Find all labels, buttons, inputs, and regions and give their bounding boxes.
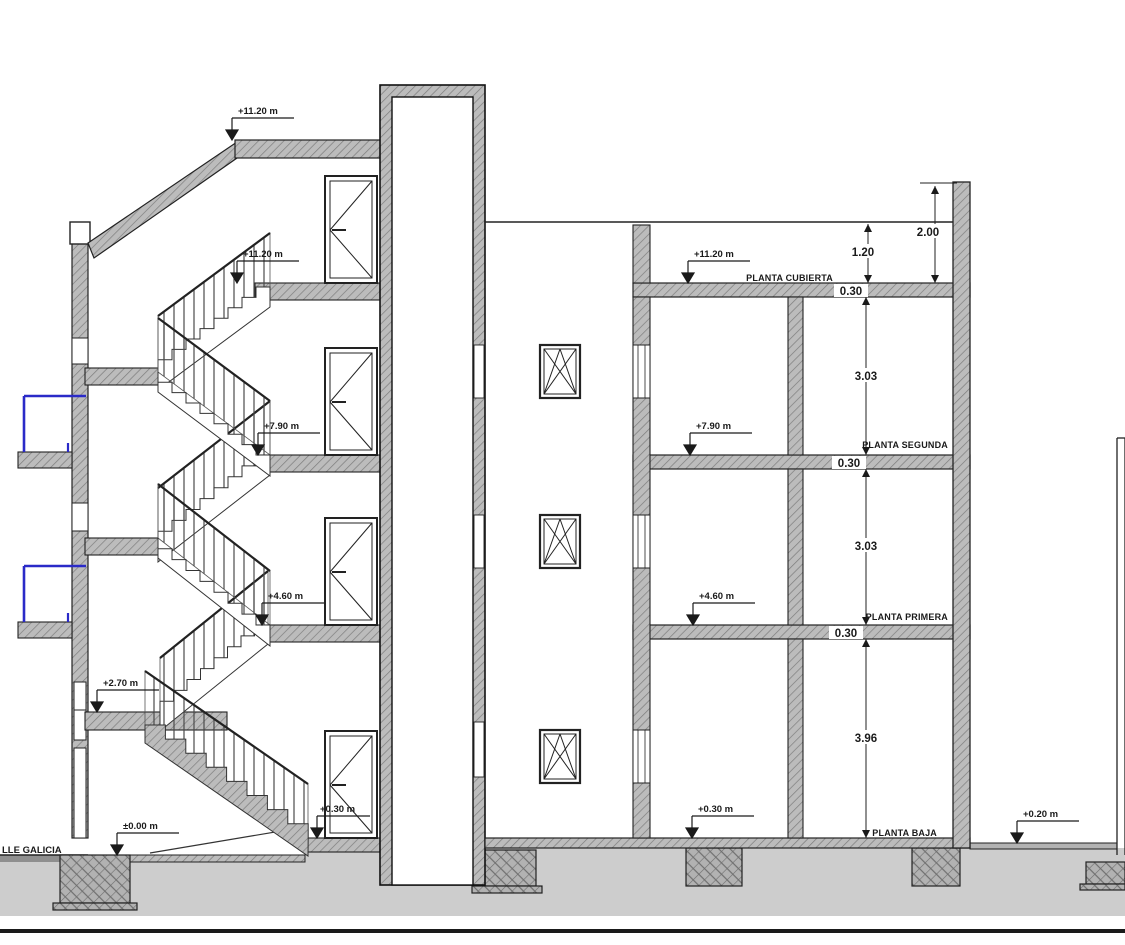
dimension-labels: 2.00 1.20 0.30 3.03 0.30 3.03 0.30 3.96 — [829, 224, 947, 745]
sloped-roof — [88, 142, 237, 258]
dimensions: 2.00 1.20 0.30 3.03 0.30 3.03 0.30 3.96 — [829, 183, 957, 838]
facade-windows — [540, 345, 580, 783]
wall-cap — [70, 222, 90, 244]
floor-label-baja: PLANTA BAJA — [872, 828, 937, 838]
facade-window — [540, 345, 580, 398]
shaft-opening — [474, 515, 484, 568]
mid-landing-slab — [85, 538, 160, 555]
footing — [686, 848, 742, 886]
right-exterior-wall — [953, 182, 970, 848]
dim-forjado-primera: 0.30 — [835, 628, 857, 640]
elevator-shaft — [380, 85, 485, 885]
level-label: +0.30 m — [320, 804, 355, 815]
level-marker: +7.90 m — [684, 421, 752, 455]
level-marker: +11.20 m — [682, 249, 750, 283]
level-label: +11.20 m — [243, 249, 283, 260]
level-label: +4.60 m — [699, 591, 734, 602]
floor-label-segunda: PLANTA SEGUNDA — [862, 440, 948, 450]
dim-altura-segunda: 3.03 — [855, 371, 877, 383]
level-label: ±0.00 m — [123, 821, 158, 832]
right-section — [485, 182, 970, 848]
adjacent-wall — [1117, 438, 1125, 855]
staircase — [145, 233, 308, 856]
window-opening — [74, 682, 86, 740]
landing-door — [325, 731, 377, 838]
balcony-slab — [18, 622, 72, 638]
landing-door — [325, 176, 377, 283]
dim-altura-baja: 3.96 — [855, 733, 877, 745]
footing — [478, 850, 536, 886]
landing-slab — [255, 625, 380, 642]
footing-base — [472, 886, 542, 893]
landing-slab — [255, 283, 380, 300]
window-opening — [72, 338, 88, 364]
facade-window — [540, 515, 580, 568]
shaft-opening — [474, 722, 484, 777]
level-marker: +0.30 m — [686, 804, 754, 838]
level-marker: +11.20 m — [226, 106, 294, 140]
footing-base — [1080, 884, 1125, 890]
dim-antepecho: 1.20 — [852, 247, 874, 259]
patio-slab — [970, 843, 1117, 849]
level-marker: +4.60 m — [687, 591, 755, 625]
window-opening — [633, 345, 650, 398]
level-label: +11.20 m — [238, 106, 278, 117]
footing-base — [53, 903, 137, 910]
floor-label-cubierta: PLANTA CUBIERTA — [746, 273, 833, 283]
architectural-section-drawing: 2.00 1.20 0.30 3.03 0.30 3.03 0.30 3.96 … — [0, 0, 1125, 945]
mid-landing-slab — [85, 368, 160, 385]
stair-roof-slab — [235, 140, 385, 158]
landing-door — [325, 518, 377, 625]
street-label: LLE GALICIA — [2, 845, 62, 856]
ground-landing-slab — [305, 838, 380, 852]
level-label: +4.60 m — [268, 591, 303, 602]
ground-baseline — [0, 929, 1125, 933]
window-opening — [633, 515, 650, 568]
level-label: +0.20 m — [1023, 809, 1058, 820]
window-opening — [72, 503, 88, 531]
balcony-slab — [18, 452, 72, 468]
elevator-shaft-interior — [392, 97, 473, 885]
level-label: +7.90 m — [696, 421, 731, 432]
landing-slab — [255, 455, 380, 472]
shaft-opening — [474, 345, 484, 398]
footing — [1086, 862, 1125, 884]
level-label: +2.70 m — [103, 678, 138, 689]
dim-forjado-cubierta: 0.30 — [840, 286, 862, 298]
ground-slab — [485, 838, 970, 848]
facade-window — [540, 730, 580, 783]
level-label: +11.20 m — [694, 249, 734, 260]
level-label: +7.90 m — [264, 421, 299, 432]
floor-slab — [633, 455, 970, 469]
level-label: +0.30 m — [698, 804, 733, 815]
interior-wall — [788, 297, 803, 838]
window-opening — [633, 730, 650, 783]
dim-altura-primera: 3.03 — [855, 541, 877, 553]
floor-label-primera: PLANTA PRIMERA — [866, 612, 949, 622]
footing — [60, 855, 130, 903]
dim-forjado-segunda: 0.30 — [838, 458, 860, 470]
landing-door — [325, 348, 377, 455]
dim-parapet: 2.00 — [917, 227, 939, 239]
landing-doors — [325, 176, 377, 838]
roof-slab — [633, 283, 970, 297]
footing — [912, 848, 960, 886]
floor-slab — [633, 625, 970, 639]
floor-labels: PLANTA CUBIERTA PLANTA SEGUNDA PLANTA PR… — [746, 273, 948, 838]
door-opening — [74, 748, 86, 838]
party-wall — [633, 225, 650, 838]
